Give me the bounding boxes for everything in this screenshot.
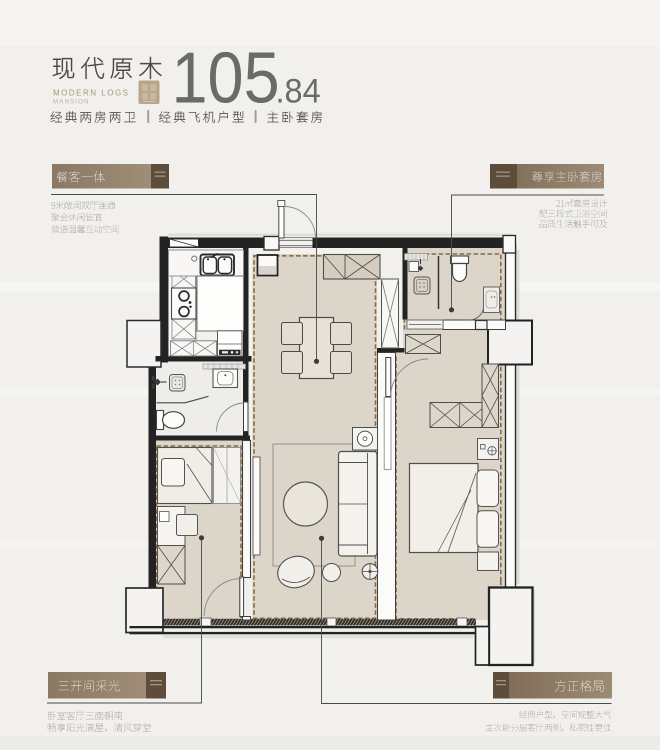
svg-text:MANSION: MANSION bbox=[53, 99, 90, 106]
svg-text:.84: .84 bbox=[276, 73, 321, 111]
svg-text:105: 105 bbox=[172, 37, 280, 118]
svg-text:MODERN LOGS: MODERN LOGS bbox=[53, 89, 130, 98]
